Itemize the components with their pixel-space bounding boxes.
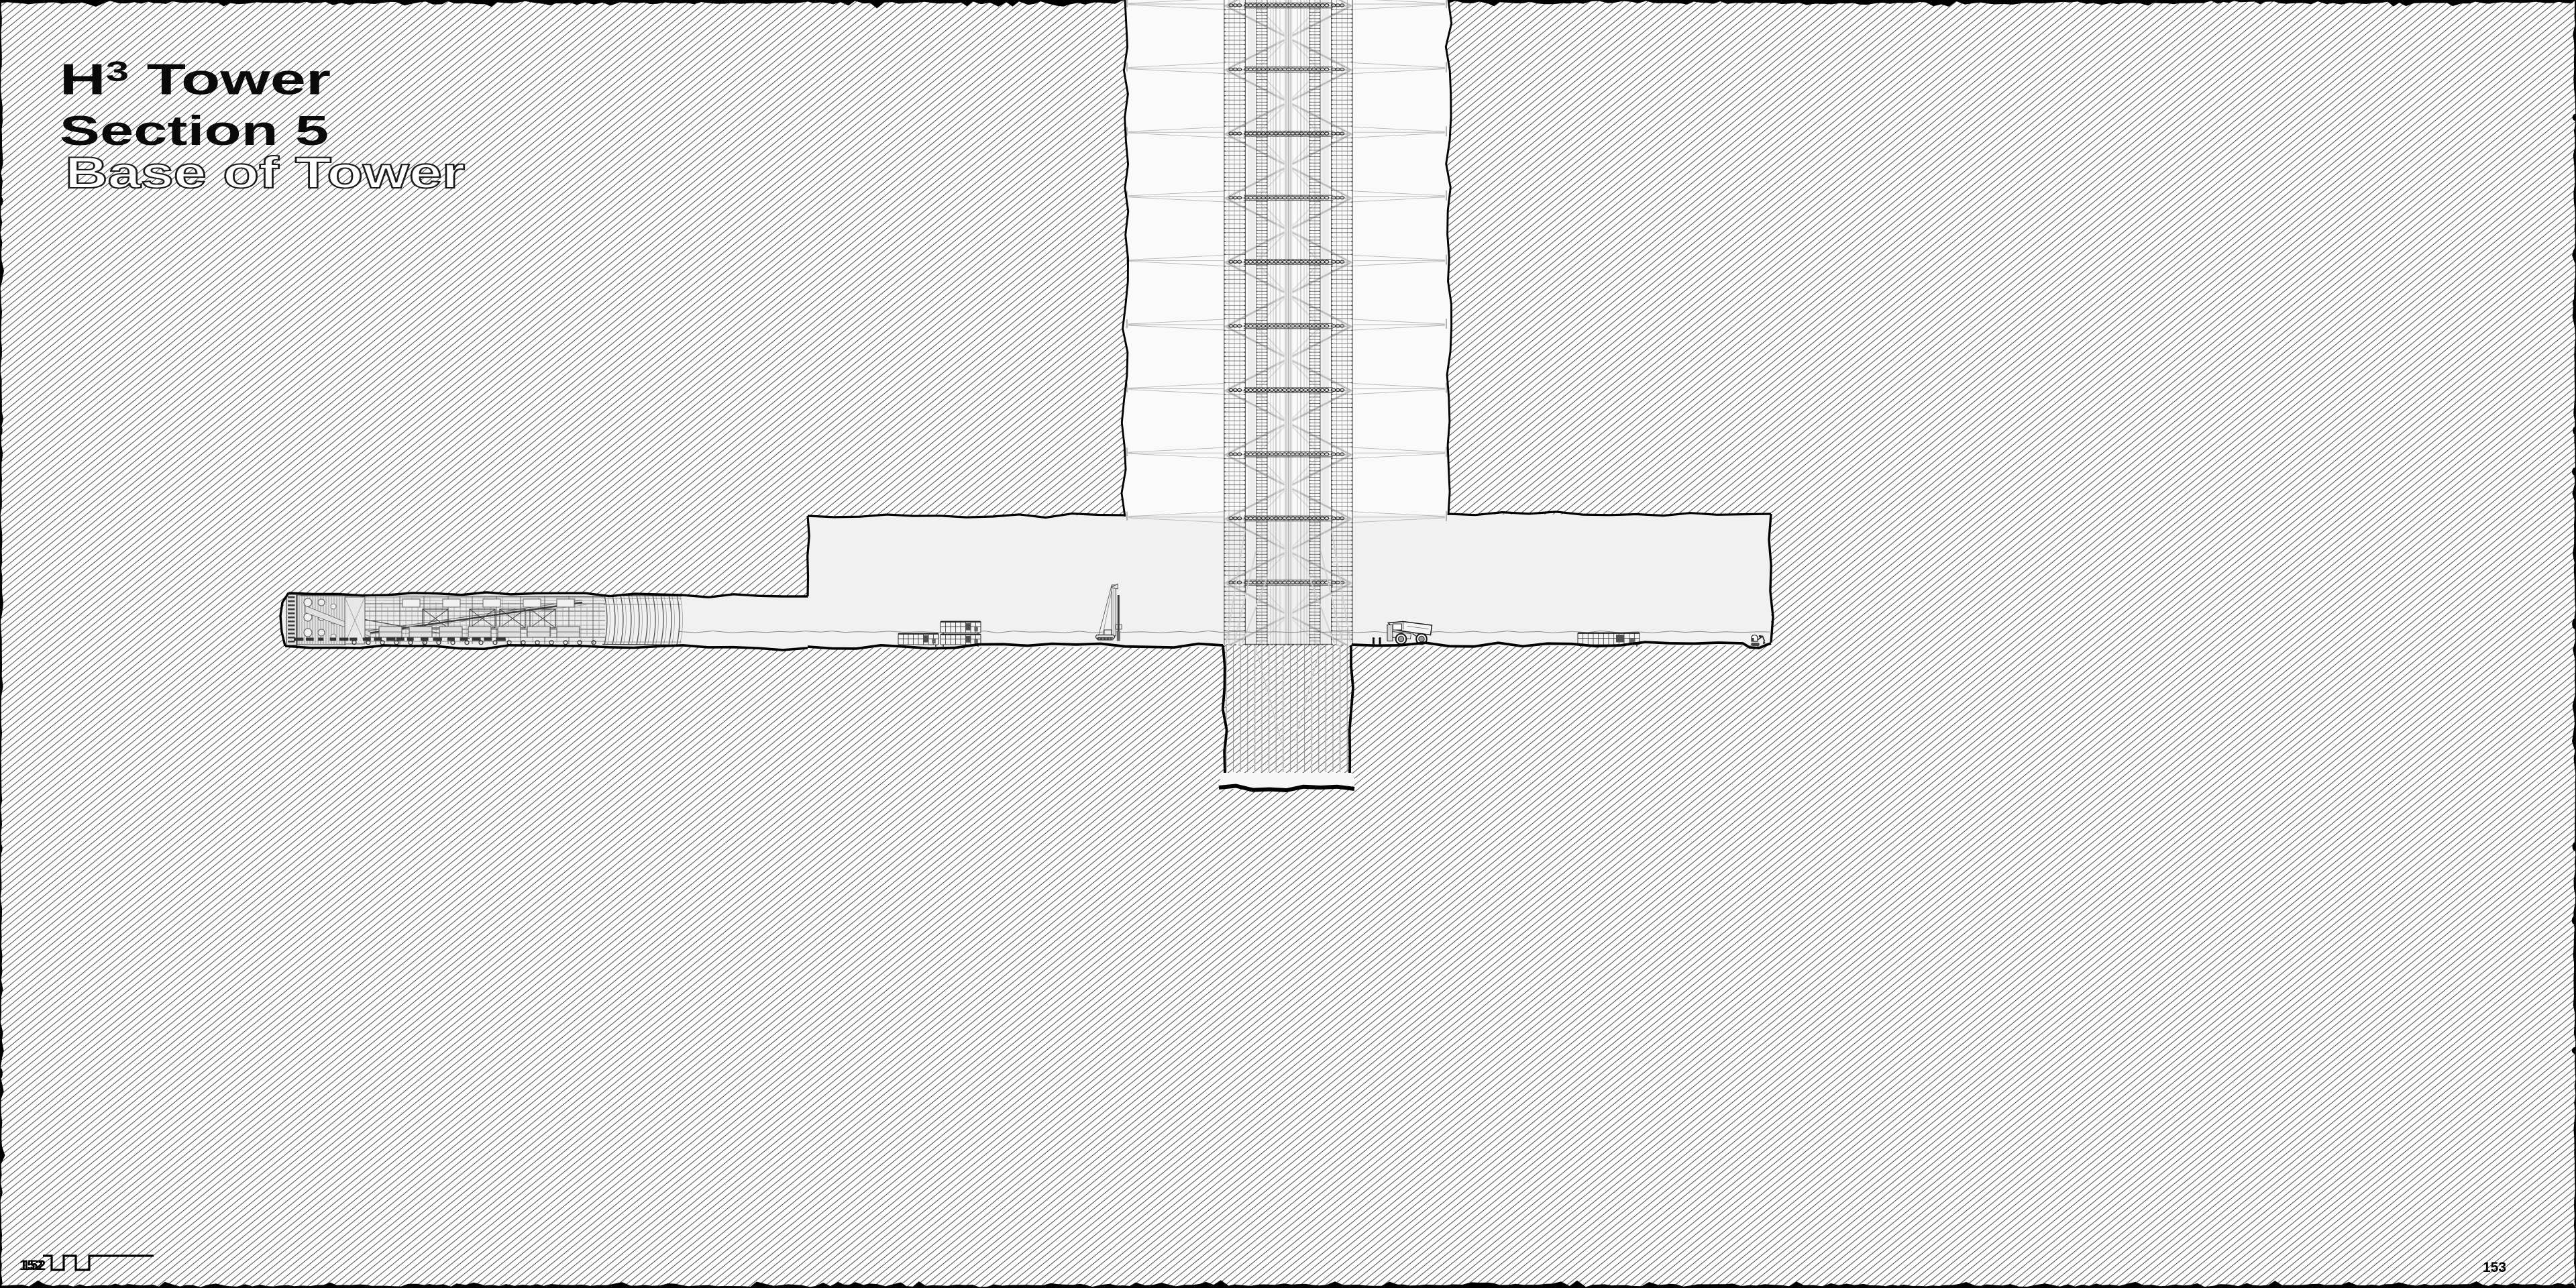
svg-text:152: 152 [22,1258,46,1273]
svg-text:Base of Tower: Base of Tower [65,148,465,198]
svg-text:153: 153 [2483,1260,2506,1275]
svg-text:H3 Tower: H3 Tower [60,55,331,103]
